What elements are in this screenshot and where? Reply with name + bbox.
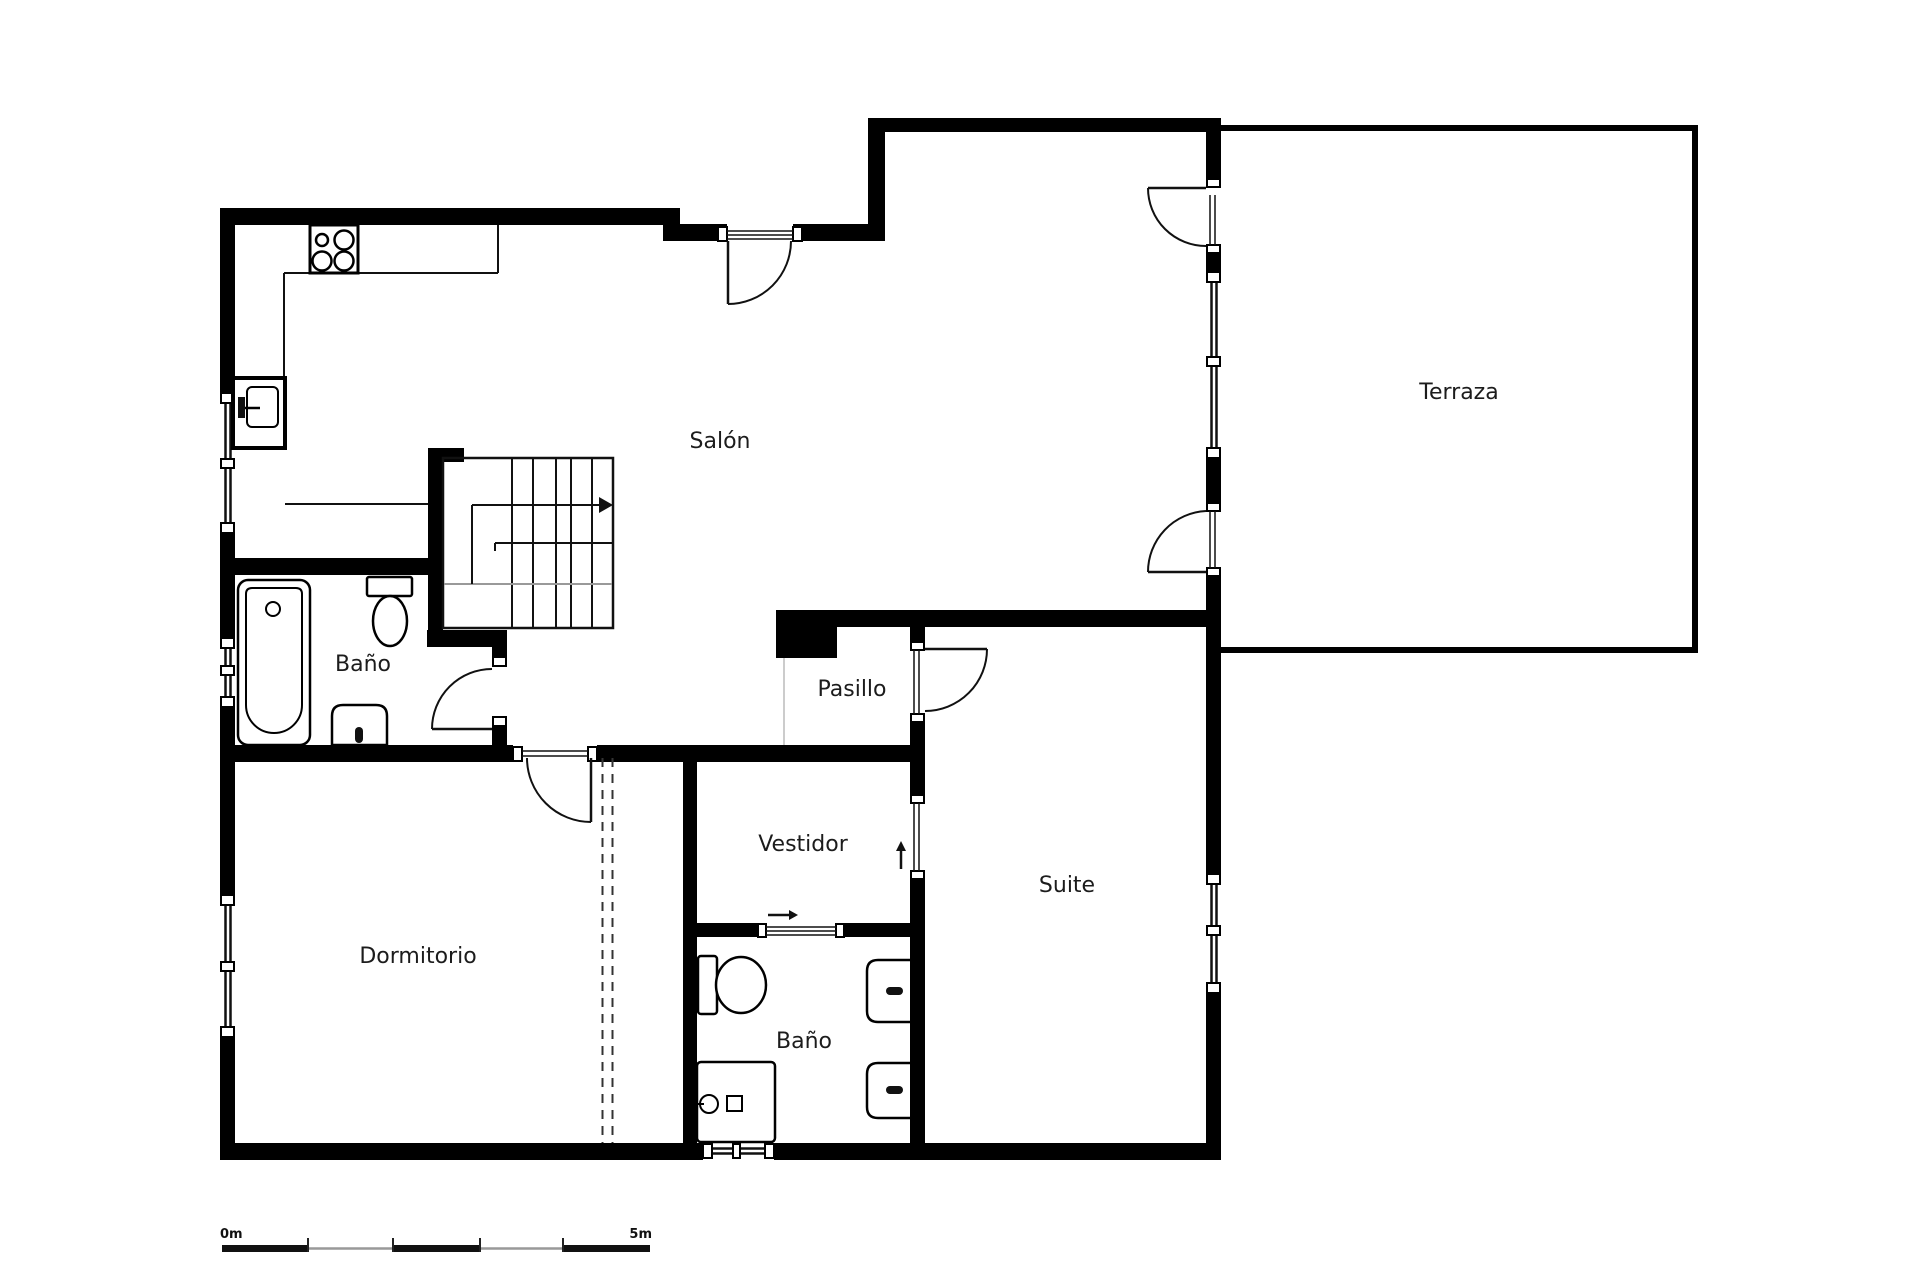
wall-bano-sup-top <box>235 558 443 575</box>
scale-thick-segment-0 <box>222 1245 308 1252</box>
wall-vestidor-bano-2 <box>845 923 925 937</box>
door-frame-block-6 <box>911 642 924 650</box>
window-kitchen-mullion <box>221 459 234 468</box>
room-label-suite: Suite <box>1039 873 1095 898</box>
door-frame-block-7 <box>911 714 924 722</box>
room-label-vestidor: Vestidor <box>758 832 849 857</box>
window-dormitorio-mullion <box>221 962 234 971</box>
window-suite-frame <box>1207 874 1220 884</box>
door-frame-block-1 <box>793 227 802 241</box>
wall-salon-suite-divider <box>776 610 1221 627</box>
wall-top-wall-d <box>868 118 1221 132</box>
wall-bottom-wall-2 <box>774 1143 1221 1160</box>
wall-outer-left-2 <box>220 533 235 638</box>
room-label-bano-inf: Baño <box>776 1029 832 1054</box>
door-frame-block-4 <box>493 657 506 666</box>
shower-drain-icon <box>727 1096 742 1111</box>
wall-outer-left-1 <box>220 208 235 393</box>
door-frame-block-12 <box>1207 179 1220 187</box>
room-label-salon: Salón <box>690 429 751 454</box>
window-bano-sup-frame <box>221 697 234 707</box>
bathtub <box>238 580 310 745</box>
wall-salon-terraza-col-5 <box>1206 993 1221 1160</box>
room-label-bano-sup: Baño <box>335 652 391 677</box>
window-bano-inf-frame <box>765 1144 774 1158</box>
door-frame-block-5 <box>493 717 506 726</box>
toilet-inf-bowl <box>716 957 766 1013</box>
wall-outer-left-4 <box>220 1037 235 1160</box>
toilet-sup-bowl <box>373 596 407 646</box>
wall-top-wall-riser <box>868 118 885 241</box>
window-dormitorio-frame <box>221 895 234 905</box>
door-frame-block-15 <box>1207 568 1220 576</box>
wall-unit-control-icon-1 <box>886 1086 903 1094</box>
wall-salon-terraza-col-1 <box>1206 118 1221 187</box>
door-frame-block-8 <box>911 795 924 803</box>
window-suite-mullion <box>1207 926 1220 935</box>
scale-thick-segment-2 <box>563 1245 650 1252</box>
window-dormitorio-frame <box>221 1027 234 1037</box>
wall-vestidor-left <box>683 745 697 1160</box>
window-bano-inf-frame <box>703 1144 712 1158</box>
wall-vestidor-bano-1 <box>697 923 758 937</box>
window-suite-frame <box>1207 983 1220 993</box>
wall-bano-sup-right-2 <box>492 727 507 762</box>
door-frame-block-3 <box>588 747 597 761</box>
wall-terraza-bottom <box>1221 647 1698 653</box>
kitchen-faucet-icon <box>238 397 245 418</box>
floor-plan-page: SalónTerrazaBañoPasilloVestidorSuiteDorm… <box>0 0 1920 1280</box>
room-label-terraza: Terraza <box>1418 380 1498 405</box>
wall-suite-left-1 <box>910 627 925 642</box>
window-terraza-wall-mullion <box>1207 357 1220 366</box>
window-bano-sup-frame <box>221 638 234 648</box>
door-frame-block-9 <box>911 871 924 879</box>
wall-corridor-wall-2 <box>597 745 925 762</box>
floor-plan-drawing: SalónTerrazaBañoPasilloVestidorSuiteDorm… <box>0 0 1920 1280</box>
door-frame-block-2 <box>513 747 522 761</box>
wall-outer-left-3 <box>220 707 235 895</box>
wall-terraza-right <box>1692 125 1698 653</box>
wall-salon-terraza-col-3 <box>1206 458 1221 503</box>
scale-label-start: 0m <box>220 1227 243 1242</box>
window-kitchen-frame <box>221 523 234 533</box>
wall-unit-control-icon-0 <box>886 987 903 995</box>
door-frame-block-11 <box>836 924 844 937</box>
wall-suite-left-3 <box>910 880 925 1160</box>
wall-terraza-top <box>1221 125 1698 131</box>
toilet-inf-tank <box>698 956 717 1014</box>
toilet-sup-tank <box>367 577 412 596</box>
door-frame-block-13 <box>1207 245 1220 253</box>
window-bano-inf-mullion <box>733 1144 740 1158</box>
door-frame-block-0 <box>718 227 727 241</box>
window-terraza-wall-frame <box>1207 272 1220 282</box>
room-label-dormitorio: Dormitorio <box>359 944 476 969</box>
bidet-control-icon <box>355 727 363 743</box>
door-frame-block-14 <box>1207 503 1220 511</box>
wall-stairs-cap <box>443 448 464 462</box>
wall-stairs-wall <box>428 448 443 647</box>
scale-label-end: 5m <box>629 1227 652 1242</box>
wall-stairs-stub <box>427 630 507 647</box>
wall-salon-terraza-col-2 <box>1206 253 1221 272</box>
door-frame-block-10 <box>758 924 766 937</box>
wall-pasillo-pillar <box>776 610 837 658</box>
window-bano-sup-mullion <box>221 666 234 675</box>
wall-top-wall-a <box>220 208 680 225</box>
scale-thick-segment-1 <box>393 1245 480 1252</box>
room-label-pasillo: Pasillo <box>817 677 886 702</box>
wall-corridor-wall-1 <box>235 745 513 762</box>
window-terraza-wall-frame <box>1207 448 1220 458</box>
wall-bottom-wall-1 <box>220 1143 703 1160</box>
